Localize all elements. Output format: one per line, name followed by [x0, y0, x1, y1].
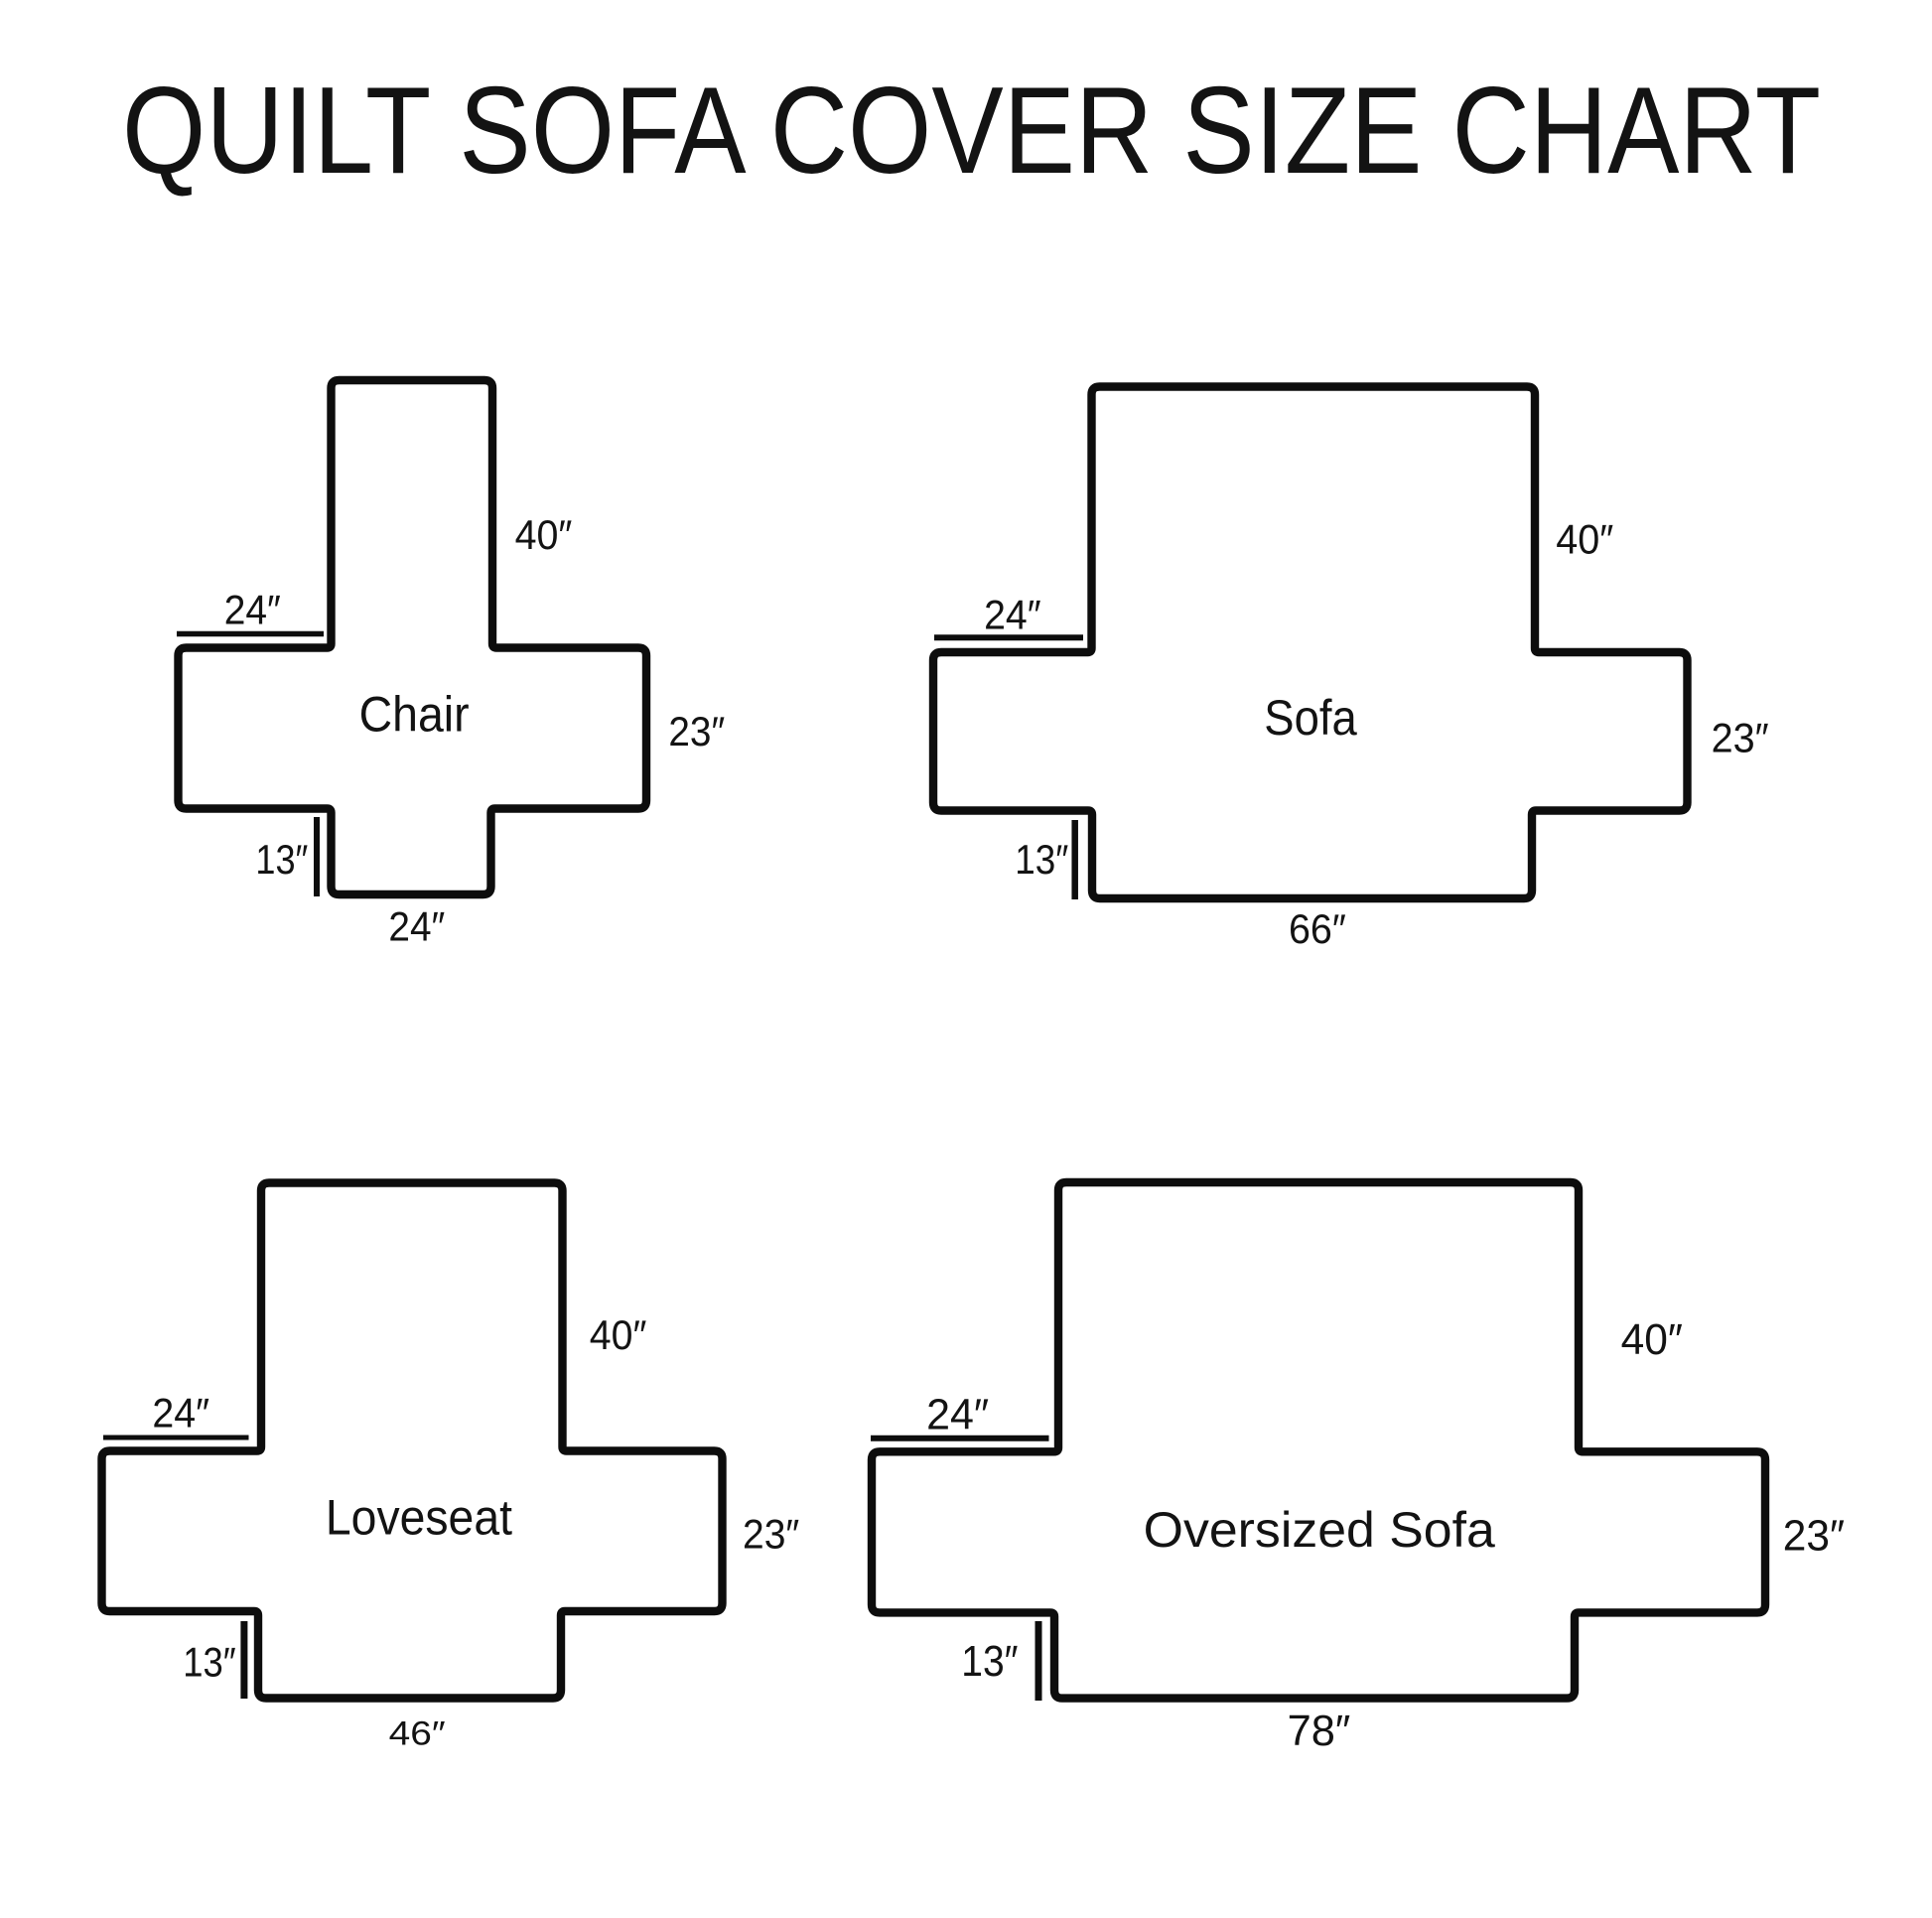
svg-text:24″: 24″: [152, 1389, 209, 1436]
svg-text:24″: 24″: [984, 591, 1041, 637]
svg-text:Loveseat: Loveseat: [326, 1489, 512, 1546]
svg-text:24″: 24″: [224, 586, 281, 632]
svg-text:66″: 66″: [1289, 905, 1346, 952]
svg-text:13″: 13″: [1015, 836, 1068, 883]
svg-text:Oversized Sofa: Oversized Sofa: [1144, 1501, 1496, 1558]
svg-text:13″: 13″: [961, 1638, 1018, 1686]
svg-text:24″: 24″: [388, 902, 445, 949]
svg-text:QUILT SOFA COVER SIZE CHART: QUILT SOFA COVER SIZE CHART: [122, 63, 1821, 200]
svg-text:13″: 13″: [255, 836, 308, 883]
svg-text:40″: 40″: [515, 511, 573, 558]
svg-text:40″: 40″: [1621, 1316, 1683, 1364]
svg-text:23″: 23″: [743, 1511, 799, 1558]
svg-text:40″: 40″: [590, 1311, 647, 1358]
svg-text:23″: 23″: [1783, 1513, 1845, 1561]
svg-text:23″: 23″: [1712, 714, 1769, 760]
svg-text:Sofa: Sofa: [1264, 689, 1357, 746]
svg-text:Chair: Chair: [359, 686, 470, 743]
svg-text:40″: 40″: [1556, 516, 1613, 563]
svg-text:78″: 78″: [1288, 1708, 1351, 1755]
svg-text:24″: 24″: [926, 1392, 989, 1439]
svg-text:23″: 23″: [668, 708, 725, 754]
svg-text:46″: 46″: [389, 1715, 446, 1753]
svg-text:13″: 13″: [183, 1639, 235, 1686]
